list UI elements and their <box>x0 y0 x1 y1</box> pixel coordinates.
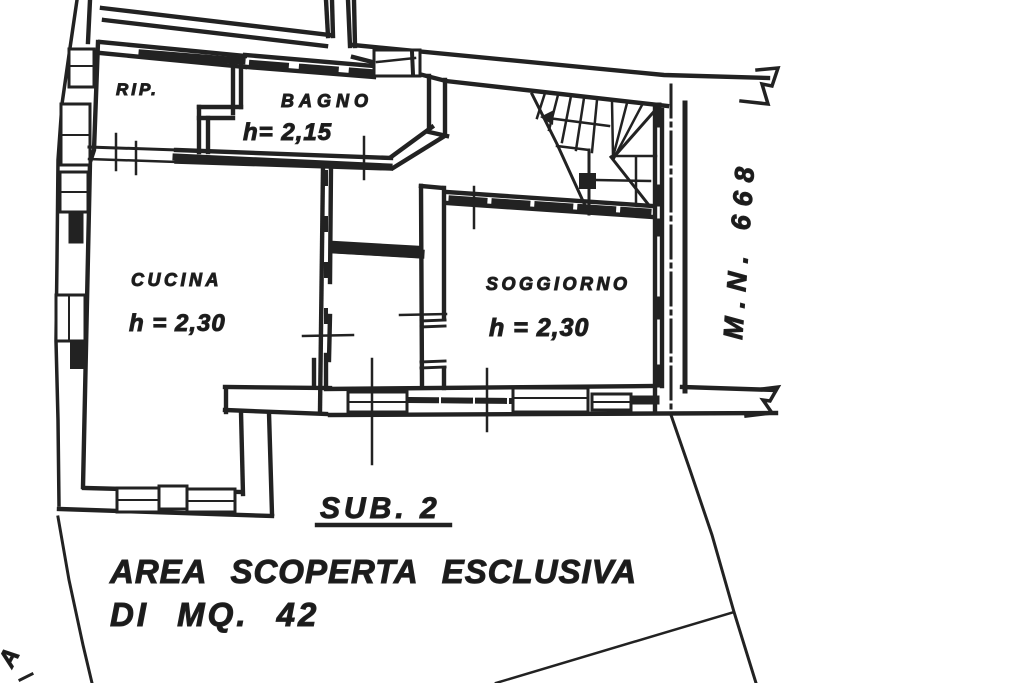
svg-text:A: A <box>0 644 25 673</box>
svg-text:RIP.: RIP. <box>116 80 159 99</box>
svg-text:DI MQ. 42: DI MQ. 42 <box>110 596 319 633</box>
svg-text:h= 2,15: h= 2,15 <box>243 119 332 146</box>
svg-text:AREA SCOPERTA ESCLUSIVA: AREA SCOPERTA ESCLUSIVA <box>109 553 637 590</box>
svg-text:M.N. 668: M.N. 668 <box>718 157 761 340</box>
svg-text:h = 2,30: h = 2,30 <box>489 314 589 342</box>
svg-text:h = 2,30: h = 2,30 <box>129 310 226 337</box>
svg-text:SOGGIORNO: SOGGIORNO <box>486 274 631 294</box>
svg-text:BAGNO: BAGNO <box>281 91 373 111</box>
svg-text:CUCINA: CUCINA <box>131 270 222 290</box>
svg-text:SUB. 2: SUB. 2 <box>320 492 441 525</box>
